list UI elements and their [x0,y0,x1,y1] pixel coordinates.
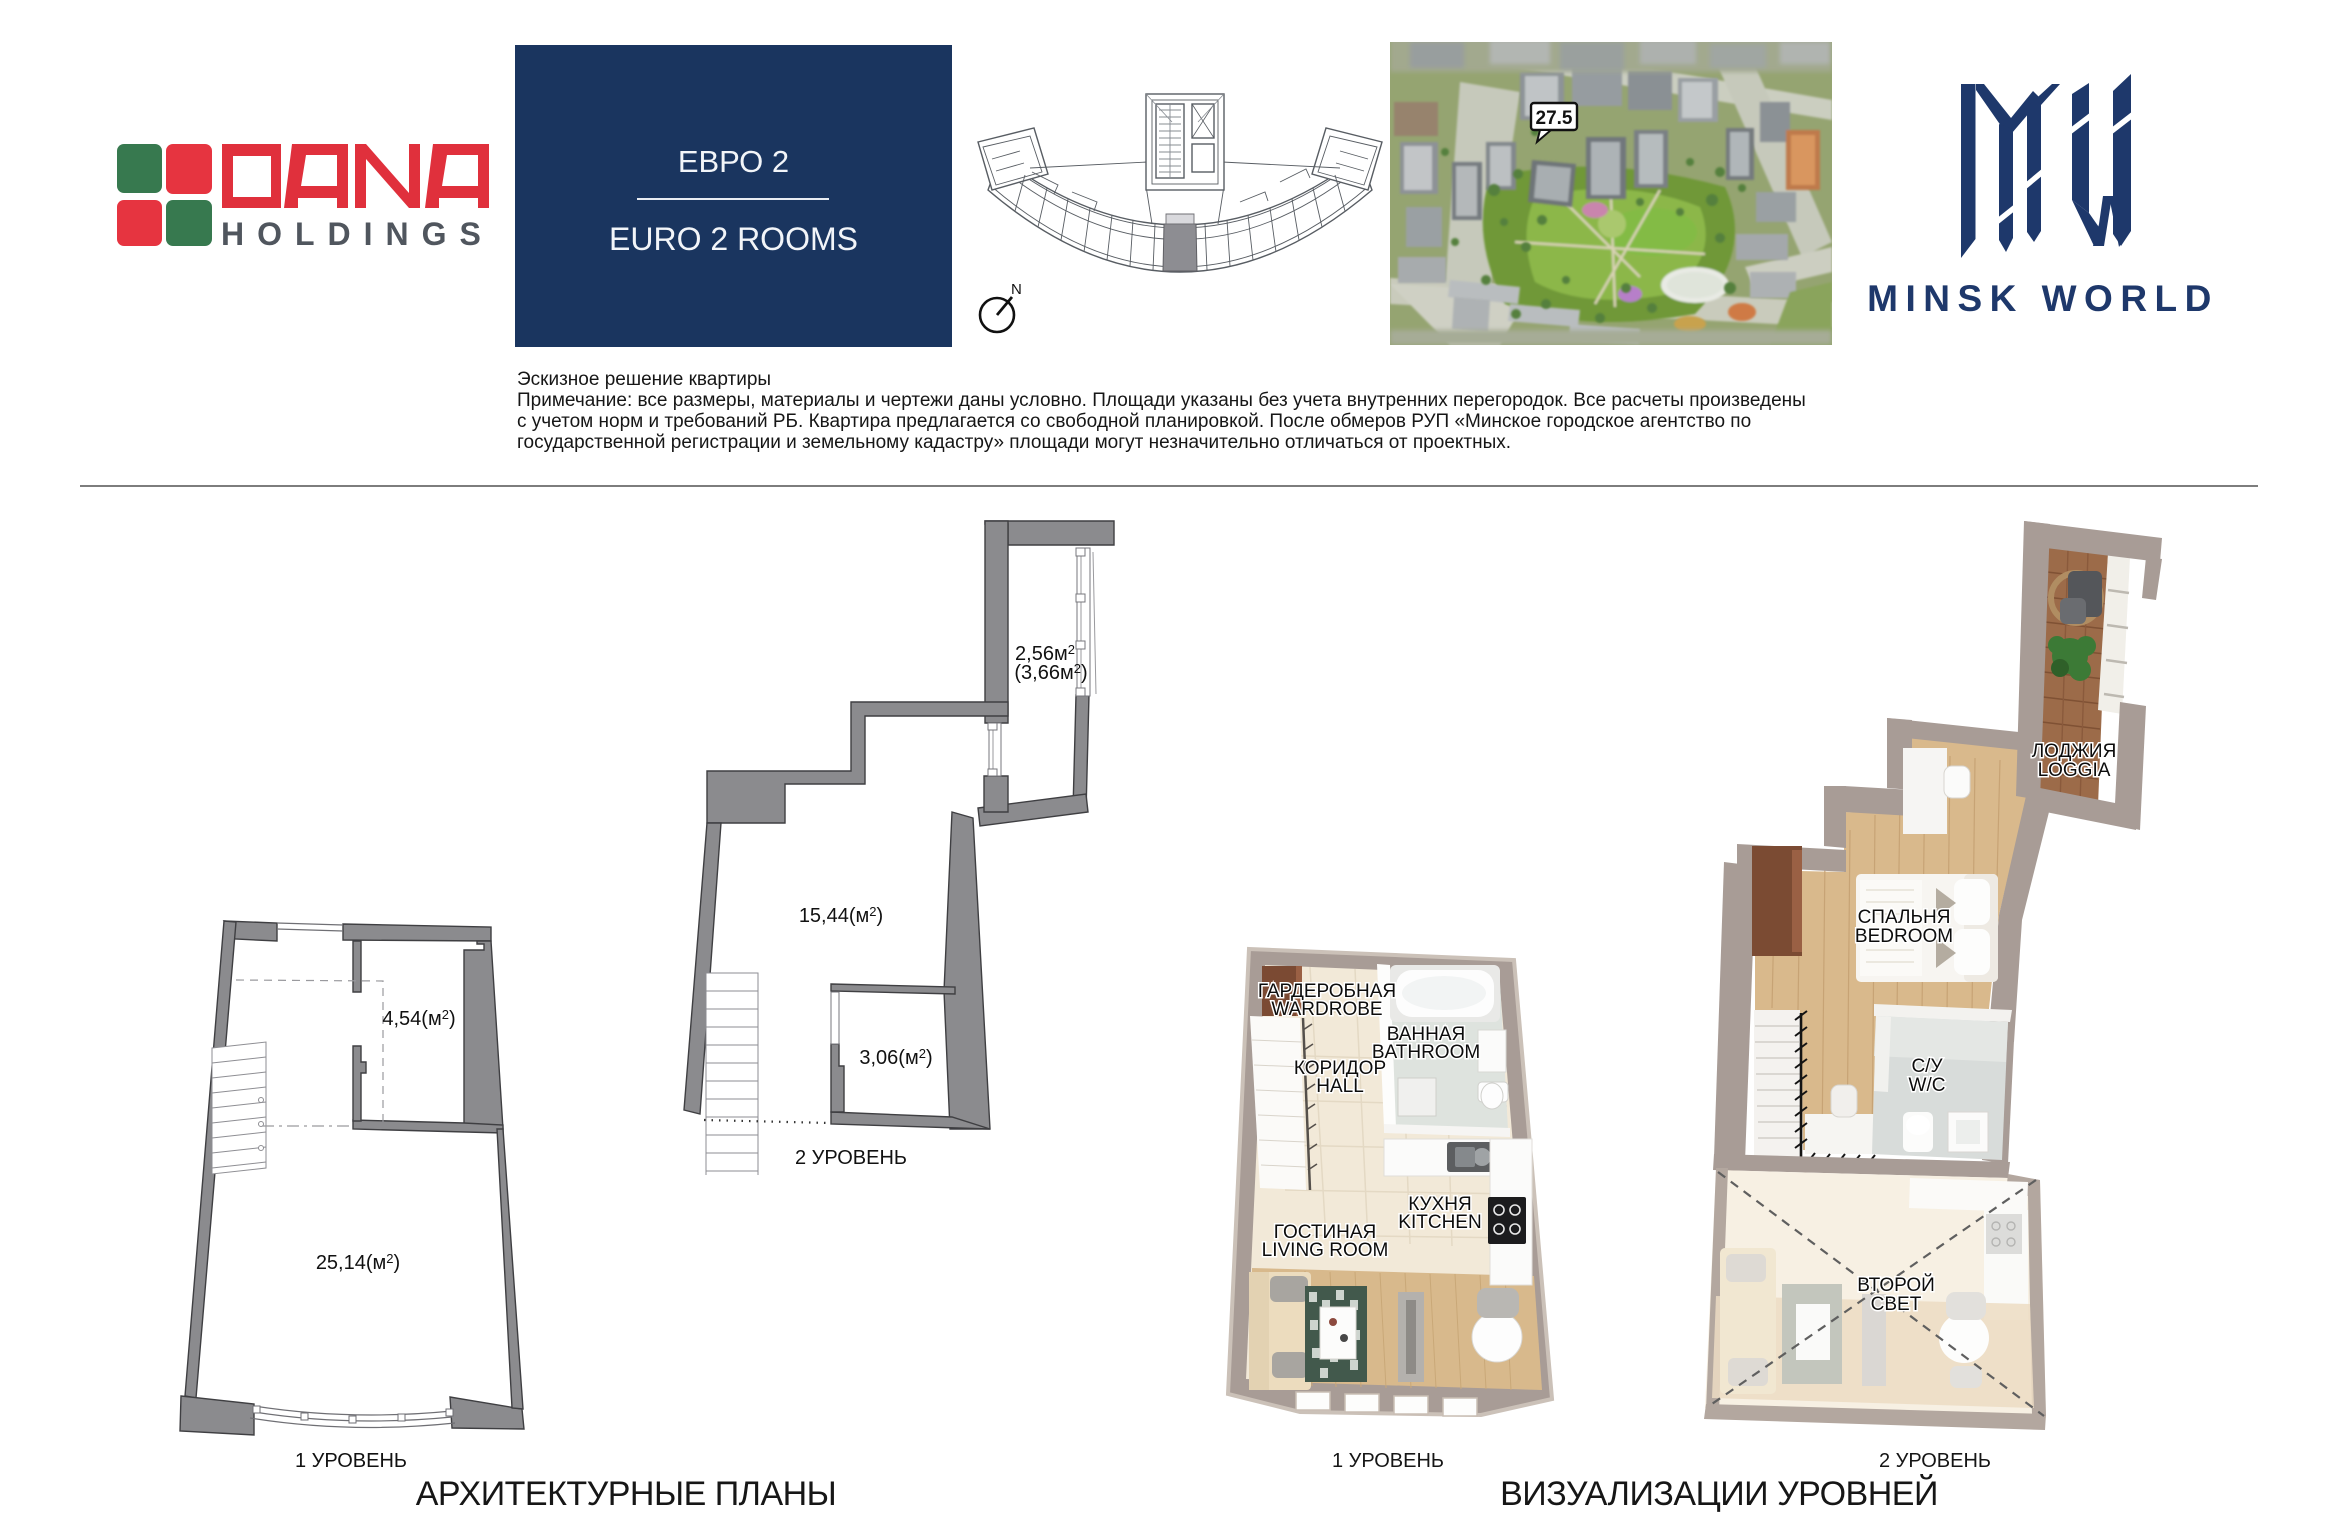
svg-text:BATHROOM: BATHROOM [1372,1042,1480,1063]
svg-text:LOGGIA: LOGGIA [2038,760,2111,781]
svg-text:WARDROBE: WARDROBE [1271,999,1382,1020]
svg-text:2 УРОВЕНЬ: 2 УРОВЕНЬ [795,1147,907,1169]
svg-text:3,06(м2): 3,06(м2) [859,1046,932,1069]
svg-text:ВТОРОЙ: ВТОРОЙ [1857,1274,1935,1296]
svg-text:27.5: 27.5 [1536,108,1573,129]
svg-text:СВЕТ: СВЕТ [1871,1294,1922,1315]
svg-text:25,14(м2): 25,14(м2) [316,1251,400,1274]
svg-text:W/C: W/C [1909,1075,1946,1096]
svg-text:HALL: HALL [1316,1076,1364,1097]
svg-text:15,44(м2): 15,44(м2) [799,904,883,927]
svg-text:1 УРОВЕНЬ: 1 УРОВЕНЬ [295,1450,407,1472]
svg-text:СПАЛЬНЯ: СПАЛЬНЯ [1858,907,1951,928]
svg-text:4,54(м2): 4,54(м2) [382,1007,455,1030]
svg-text:ЛОДЖИЯ: ЛОДЖИЯ [2032,741,2117,762]
svg-text:N: N [1011,281,1022,298]
svg-text:LIVING ROOM: LIVING ROOM [1262,1240,1389,1261]
svg-text:С/У: С/У [1911,1056,1943,1077]
svg-text:BEDROOM: BEDROOM [1855,926,1953,947]
svg-text:KITCHEN: KITCHEN [1398,1212,1481,1233]
svg-text:MINSK WORLD: MINSK WORLD [1867,278,2219,319]
svg-text:HOLDINGS: HOLDINGS [221,216,494,252]
